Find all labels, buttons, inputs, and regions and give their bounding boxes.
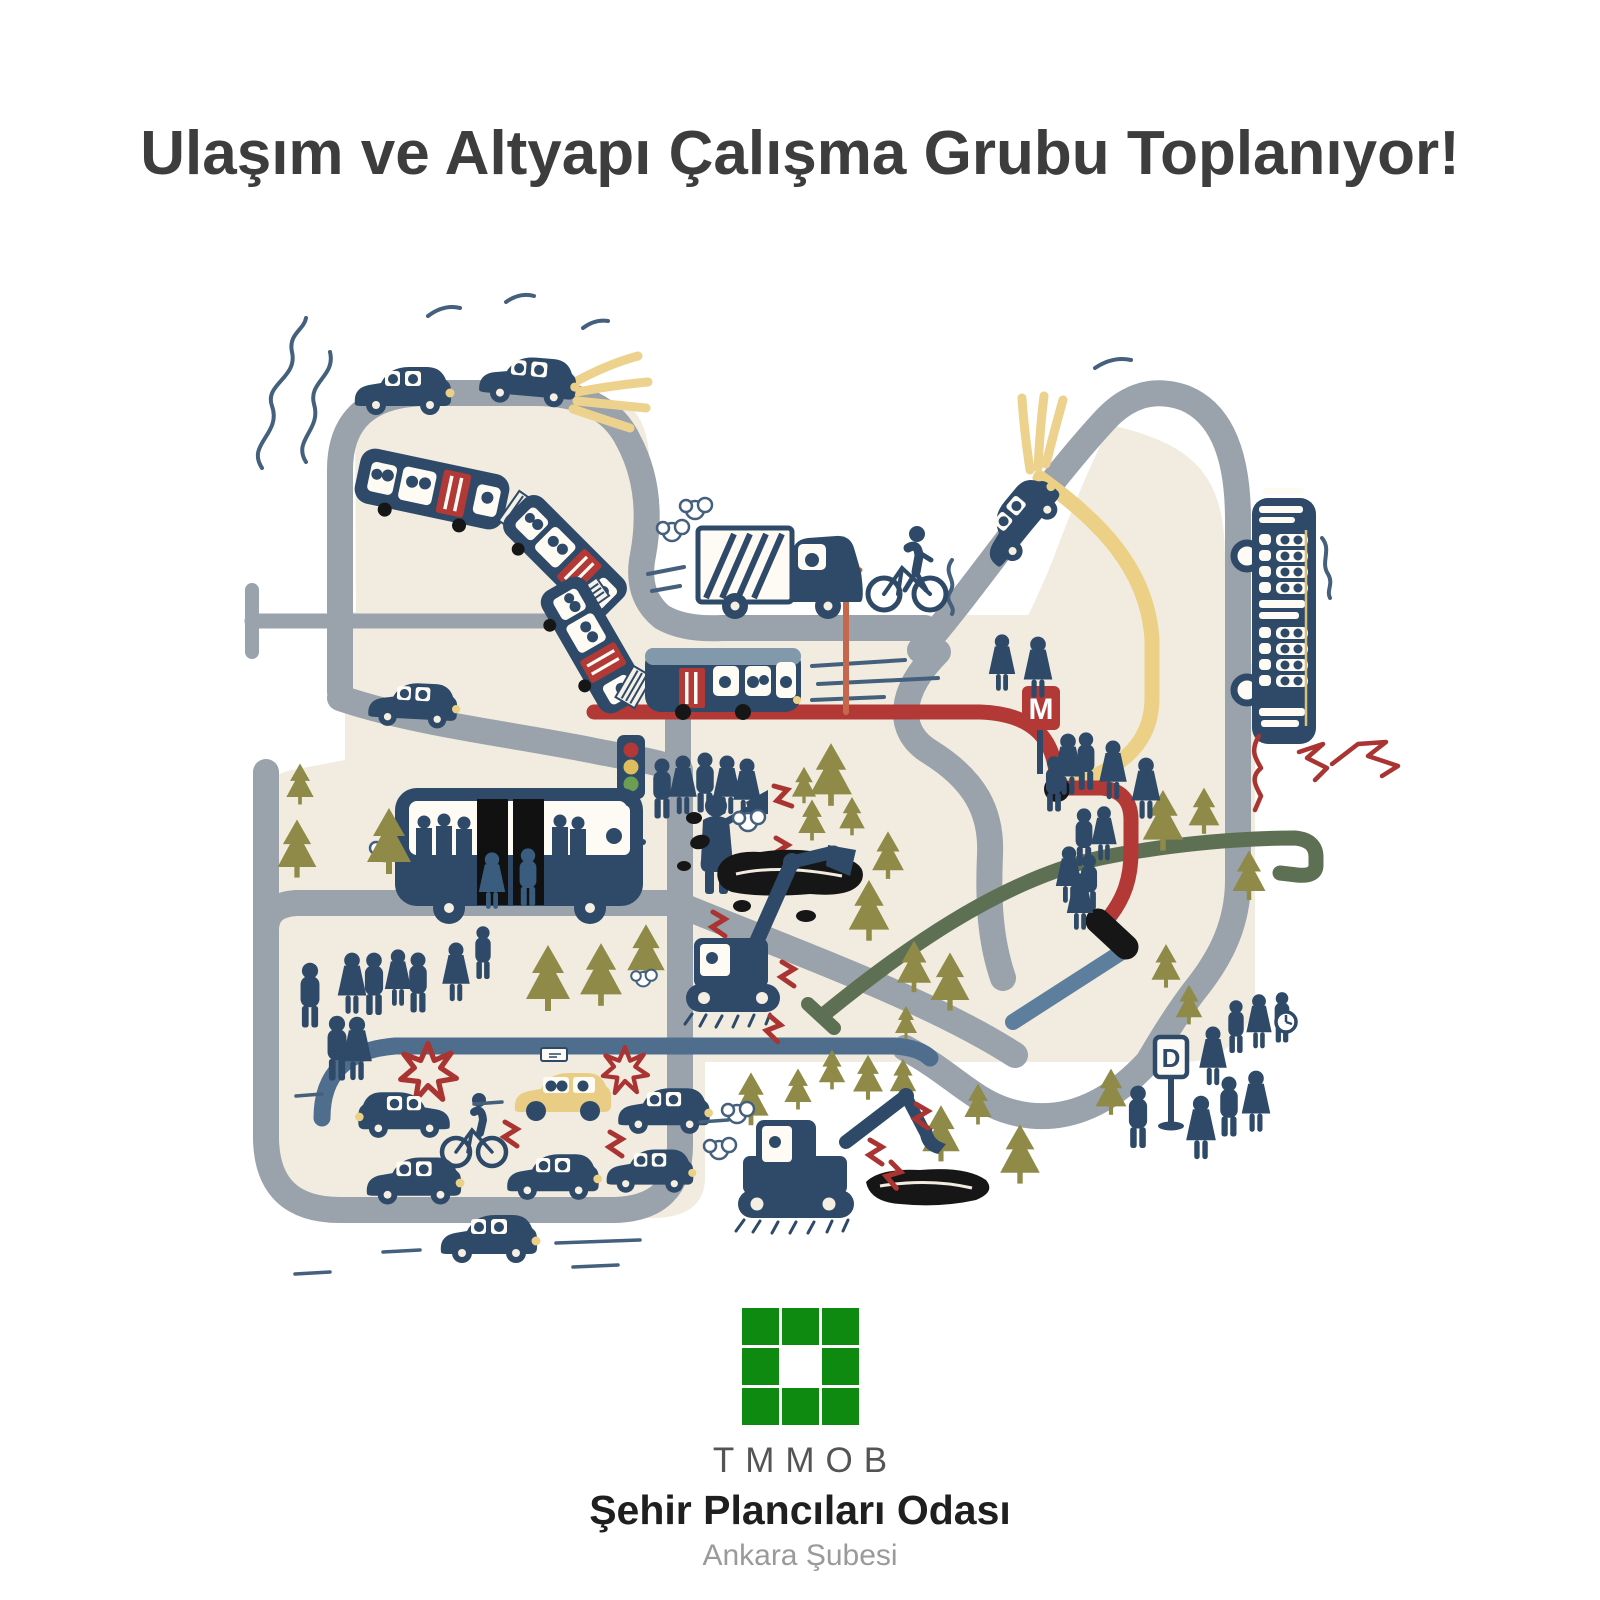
logo-square [822, 1308, 859, 1345]
cyclist [868, 526, 946, 610]
logo-square [822, 1348, 859, 1385]
footer-logo-block: TMMOB Şehir Plancıları Odası Ankara Şube… [0, 1308, 1600, 1573]
org-acronym: TMMOB [0, 1441, 1600, 1481]
clock-doodle [1276, 1012, 1296, 1032]
smoke-puff [680, 498, 712, 519]
poster: { "poster": { "title": "Ulaşım ve Altyap… [0, 0, 1600, 1600]
city-bus [370, 788, 643, 924]
spo-logo [742, 1308, 859, 1425]
dump-truck [648, 528, 863, 619]
tram [645, 648, 801, 720]
logo-square [782, 1308, 819, 1345]
logo-square [822, 1388, 859, 1425]
org-branch: Ankara Şubesi [0, 1539, 1600, 1573]
logo-square [782, 1388, 819, 1425]
metro-sign-letter: M [1029, 693, 1054, 726]
logo-square [742, 1308, 779, 1345]
org-name: Şehir Plancıları Odası [0, 1487, 1600, 1534]
smoke-puff [657, 520, 689, 541]
logo-square [742, 1388, 779, 1425]
logo-center-hole [782, 1348, 819, 1385]
dolmus-sign-letter: D [1162, 1043, 1181, 1073]
logo-square [742, 1348, 779, 1385]
red-cracks [1254, 736, 1398, 810]
